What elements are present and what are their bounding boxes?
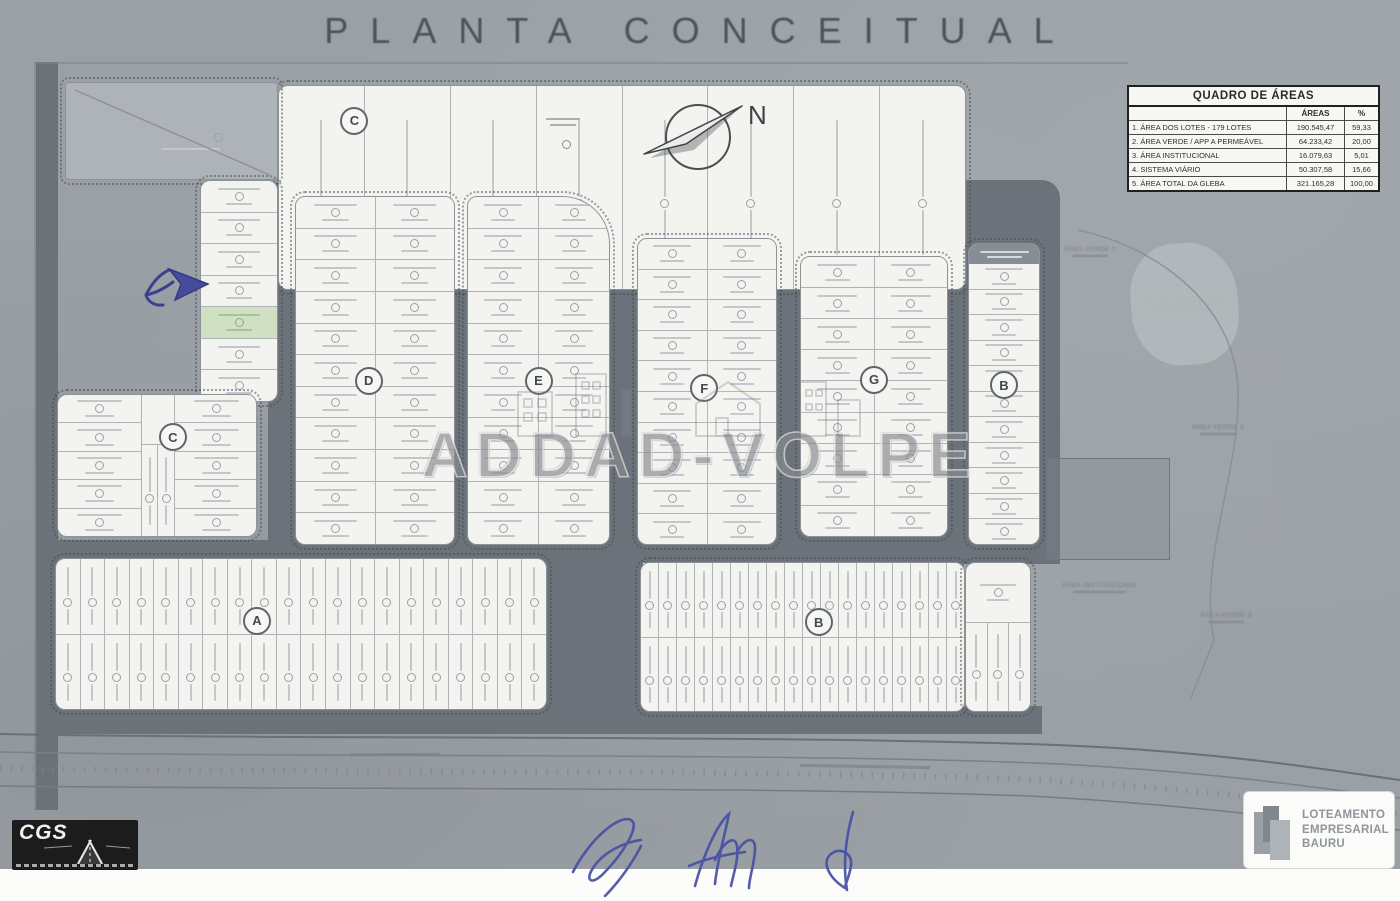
lot <box>296 482 375 513</box>
area-pct: 59,33 <box>1344 120 1378 134</box>
lot <box>56 559 80 634</box>
lot <box>539 229 609 260</box>
lot <box>468 197 538 228</box>
lot <box>875 506 948 536</box>
lot <box>81 559 105 634</box>
lot-number-circle <box>214 133 223 142</box>
lot <box>175 423 257 450</box>
lot <box>424 635 448 710</box>
lot <box>767 563 784 637</box>
lot <box>893 638 910 712</box>
lot <box>638 423 707 453</box>
lot <box>296 229 375 260</box>
lot <box>659 638 676 712</box>
lot <box>105 559 129 634</box>
lot <box>708 239 777 269</box>
lot <box>638 484 707 514</box>
block-label-G: G <box>860 366 888 394</box>
quadra-D: D <box>295 196 455 545</box>
lot <box>638 453 707 483</box>
lot <box>142 445 157 537</box>
lot <box>969 468 1039 493</box>
lot <box>638 239 707 269</box>
quadra-A: A <box>55 558 547 710</box>
area-value: 50.307,58 <box>1286 162 1344 176</box>
lot <box>785 563 802 637</box>
lot <box>969 264 1039 289</box>
lot <box>175 480 257 507</box>
ink-signature <box>545 800 905 901</box>
lot <box>875 638 892 712</box>
area-pct: 100,00 <box>1344 176 1378 190</box>
block-label-B: B <box>805 608 833 636</box>
lot <box>708 392 777 422</box>
lot <box>468 292 538 323</box>
lot <box>708 484 777 514</box>
block-label-C: C <box>340 107 368 135</box>
quadra-B-right: B <box>968 243 1040 545</box>
lot <box>326 635 350 710</box>
quadra-B-bottom: B <box>640 562 965 712</box>
lot <box>677 563 694 637</box>
lot <box>449 559 473 634</box>
lot <box>539 513 609 544</box>
lot <box>821 638 838 712</box>
quadra-F: F <box>637 238 777 545</box>
lot <box>468 260 538 291</box>
lot <box>175 509 257 536</box>
area-name: 1. ÁREA DOS LOTES - 179 LOTES <box>1129 120 1286 134</box>
lot <box>695 638 712 712</box>
lot <box>839 563 856 637</box>
page-title: PLANTA CONCEITUAL <box>0 10 1400 52</box>
lot <box>708 331 777 361</box>
lot <box>969 443 1039 468</box>
lot <box>801 506 874 536</box>
lot <box>296 197 375 228</box>
block-label-D: D <box>355 367 383 395</box>
block-label-F: F <box>690 374 718 402</box>
sheet-boundary-left <box>34 62 36 810</box>
lot <box>376 482 455 513</box>
lot <box>201 181 277 212</box>
lot <box>58 480 141 507</box>
lot <box>158 445 173 537</box>
lot <box>893 563 910 637</box>
lot <box>296 292 375 323</box>
lot <box>1009 623 1030 712</box>
lot <box>228 635 252 710</box>
lot <box>638 270 707 300</box>
faint-label: ÁREA VERDE 2 <box>1064 246 1116 257</box>
lot <box>801 475 874 505</box>
lot <box>351 635 375 710</box>
lot <box>659 563 676 637</box>
lot-text-smudge <box>161 148 220 150</box>
lot <box>58 452 141 479</box>
lot <box>400 635 424 710</box>
lot <box>801 319 874 349</box>
area-pct: 20,00 <box>1344 134 1378 148</box>
lot <box>203 559 227 634</box>
lot <box>539 482 609 513</box>
lot <box>376 355 455 386</box>
lot <box>875 444 948 474</box>
lot <box>875 563 892 637</box>
area-value: 190.545,47 <box>1286 120 1344 134</box>
area-name: 4. SISTEMA VIÁRIO <box>1129 162 1286 176</box>
mini-label-smudge <box>546 118 580 120</box>
lot <box>969 341 1039 366</box>
areas-table-body: 1. ÁREA DOS LOTES - 179 LOTES190.545,475… <box>1129 120 1378 190</box>
lot <box>130 559 154 634</box>
lot <box>376 387 455 418</box>
lot <box>296 513 375 544</box>
lot <box>875 319 948 349</box>
lot <box>58 509 141 536</box>
lot <box>801 444 874 474</box>
lot <box>376 197 455 228</box>
lot-grid <box>801 257 947 536</box>
lot <box>201 213 277 244</box>
lot <box>105 635 129 710</box>
lot-grid <box>969 264 1039 544</box>
lot-grid <box>66 83 277 179</box>
mini-label-smudge <box>550 124 576 126</box>
wedge-lot <box>65 82 278 180</box>
block-label-B: B <box>990 371 1018 399</box>
lot <box>966 623 987 712</box>
lot <box>175 452 257 479</box>
lot <box>708 453 777 483</box>
lot <box>58 423 141 450</box>
lot <box>875 413 948 443</box>
lot <box>468 418 538 449</box>
lot <box>375 559 399 634</box>
lot <box>857 563 874 637</box>
lot <box>539 418 609 449</box>
lot <box>154 635 178 710</box>
lot <box>969 519 1039 544</box>
quadra-B-ext <box>965 562 1031 712</box>
area-value: 321.165,28 <box>1286 176 1344 190</box>
lot <box>803 638 820 712</box>
areas-table-row: 2. ÁREA VERDE / APP A PERMEÁVEL64.233,42… <box>1129 134 1378 148</box>
areas-table-title: QUADRO DE ÁREAS <box>1129 87 1378 107</box>
lot <box>326 559 350 634</box>
areas-table-header-areas: ÁREAS <box>1286 107 1344 120</box>
lot <box>468 513 538 544</box>
lot <box>252 635 276 710</box>
areas-table-header-row: ÁREAS % <box>1129 107 1378 120</box>
lot <box>929 638 946 712</box>
lot <box>376 260 455 291</box>
faint-label: ÁREA INSTITUCIONAL <box>1062 582 1138 593</box>
lot <box>929 563 946 637</box>
lot <box>749 638 766 712</box>
badge-buildings-icon <box>1250 800 1294 860</box>
areas-table-header-pct: % <box>1344 107 1378 120</box>
lot <box>875 288 948 318</box>
lot <box>400 559 424 634</box>
ink-arrow-annotation <box>138 255 216 315</box>
lot <box>641 638 658 712</box>
lot <box>296 260 375 291</box>
road <box>545 544 645 734</box>
lot <box>473 635 497 710</box>
lot <box>179 559 203 634</box>
lot <box>638 300 707 330</box>
lot <box>988 623 1009 712</box>
lot <box>175 395 257 422</box>
lot <box>875 475 948 505</box>
lot <box>468 324 538 355</box>
loteamento-badge: LOTEAMENTO EMPRESARIAL BAURU <box>1243 791 1395 869</box>
institutional-area-outline <box>1046 458 1170 560</box>
compass-rose: N <box>640 92 780 182</box>
lot <box>839 638 856 712</box>
lot <box>539 387 609 418</box>
lot <box>969 315 1039 340</box>
lot <box>875 257 948 287</box>
lot <box>911 563 928 637</box>
lot <box>56 635 80 710</box>
lot <box>713 638 730 712</box>
lot <box>857 638 874 712</box>
lot <box>969 290 1039 315</box>
lot <box>375 635 399 710</box>
area-value: 16.079,63 <box>1286 148 1344 162</box>
lot <box>947 563 964 637</box>
quadra-C-left: C <box>57 394 257 537</box>
lot <box>522 559 546 634</box>
lot <box>296 418 375 449</box>
lot-grid <box>641 563 964 711</box>
area-value: 64.233,42 <box>1286 134 1344 148</box>
lot <box>713 563 730 637</box>
areas-table-row: 1. ÁREA DOS LOTES - 179 LOTES190.545,475… <box>1129 120 1378 134</box>
block-header-smudge <box>969 244 1039 264</box>
faint-label: ÁREA VERDE 1 <box>1192 424 1244 435</box>
badge-text: LOTEAMENTO EMPRESARIAL BAURU <box>1302 808 1389 853</box>
cgs-logo: CGS <box>12 820 138 870</box>
lot <box>376 418 455 449</box>
lot <box>468 450 538 481</box>
lot <box>351 559 375 634</box>
mini-marker-circle <box>562 140 571 149</box>
area-pct: 5,01 <box>1344 148 1378 162</box>
lot <box>801 257 874 287</box>
area-name: 5. ÁREA TOTAL DA GLEBA <box>1129 176 1286 190</box>
areas-summary-table: QUADRO DE ÁREAS ÁREAS % 1. ÁREA DOS LOTE… <box>1127 85 1380 192</box>
lot <box>468 229 538 260</box>
lot <box>641 563 658 637</box>
area-pct: 15,66 <box>1344 162 1378 176</box>
lot <box>767 638 784 712</box>
lot <box>966 563 1030 622</box>
cgs-road-icon <box>42 838 132 864</box>
lot <box>296 450 375 481</box>
lot <box>81 635 105 710</box>
lot <box>498 635 522 710</box>
lot <box>468 387 538 418</box>
block-label-A: A <box>243 607 271 635</box>
lot <box>522 635 546 710</box>
cgs-logo-caption-smudge <box>16 864 134 867</box>
lot <box>708 300 777 330</box>
faint-label: ÁREA VERDE 3 <box>1200 612 1252 623</box>
lot <box>296 324 375 355</box>
lot <box>638 331 707 361</box>
areas-table-header-spacer <box>1129 107 1286 120</box>
quadra-E: E <box>467 196 610 545</box>
lot <box>731 563 748 637</box>
lot <box>376 229 455 260</box>
compass-north-label: N <box>748 100 767 131</box>
lot <box>376 292 455 323</box>
lot <box>179 635 203 710</box>
area-name: 2. ÁREA VERDE / APP A PERMEÁVEL <box>1129 134 1286 148</box>
areas-table-row: 5. ÁREA TOTAL DA GLEBA321.165,28100,00 <box>1129 176 1378 190</box>
lot <box>801 288 874 318</box>
quadra-G: G <box>800 256 948 537</box>
lot <box>677 638 694 712</box>
lot <box>947 638 964 712</box>
lot <box>539 450 609 481</box>
lot <box>498 559 522 634</box>
lot-grid <box>58 395 256 536</box>
lot <box>130 635 154 710</box>
lot <box>695 563 712 637</box>
lot <box>376 513 455 544</box>
lot <box>154 559 178 634</box>
lot <box>468 482 538 513</box>
lot <box>969 417 1039 442</box>
areas-table-row: 3. ÁREA INSTITUCIONAL16.079,635,01 <box>1129 148 1378 162</box>
scanned-site-plan: PLANTA CONCEITUAL CDEFGBCABÁREA VERDE 2Á… <box>0 0 1400 901</box>
lot <box>203 635 227 710</box>
lot <box>277 559 301 634</box>
lot <box>376 450 455 481</box>
lot <box>301 635 325 710</box>
lot <box>749 563 766 637</box>
lot <box>708 270 777 300</box>
block-label-E: E <box>525 367 553 395</box>
lot-grid <box>56 559 546 709</box>
lot <box>473 559 497 634</box>
lot <box>969 494 1039 519</box>
lot <box>539 324 609 355</box>
lot <box>277 635 301 710</box>
lot <box>539 260 609 291</box>
lot-grid <box>966 563 1030 711</box>
lot <box>449 635 473 710</box>
lot <box>301 559 325 634</box>
block-label-C: C <box>159 423 187 451</box>
lot <box>731 638 748 712</box>
lot <box>708 514 777 544</box>
lot <box>708 423 777 453</box>
lot <box>201 339 277 370</box>
areas-table-row: 4. SISTEMA VIÁRIO50.307,5815,66 <box>1129 162 1378 176</box>
lot <box>539 292 609 323</box>
area-name: 3. ÁREA INSTITUCIONAL <box>1129 148 1286 162</box>
lot <box>911 638 928 712</box>
lot <box>801 413 874 443</box>
lot <box>785 638 802 712</box>
lot <box>58 395 141 422</box>
lot <box>424 559 448 634</box>
sheet-boundary-top <box>35 62 1128 64</box>
lot <box>376 324 455 355</box>
lot <box>638 514 707 544</box>
